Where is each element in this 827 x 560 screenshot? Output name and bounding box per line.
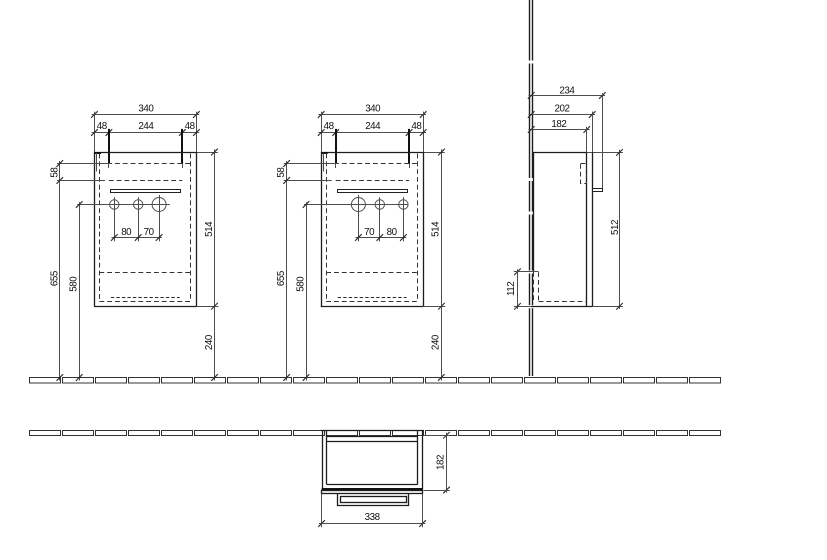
svg-text:48: 48 xyxy=(411,121,422,132)
svg-text:655: 655 xyxy=(276,270,287,286)
svg-text:70: 70 xyxy=(364,227,375,238)
svg-text:244: 244 xyxy=(138,121,154,132)
svg-text:234: 234 xyxy=(559,85,575,96)
svg-text:48: 48 xyxy=(97,121,108,132)
svg-text:58: 58 xyxy=(276,167,287,178)
svg-text:80: 80 xyxy=(387,227,398,238)
svg-text:48: 48 xyxy=(185,121,196,132)
svg-text:340: 340 xyxy=(365,103,381,114)
svg-text:514: 514 xyxy=(204,221,215,237)
svg-text:240: 240 xyxy=(431,334,442,350)
svg-text:338: 338 xyxy=(365,512,381,523)
svg-text:80: 80 xyxy=(121,227,132,238)
svg-text:340: 340 xyxy=(138,103,154,114)
svg-text:244: 244 xyxy=(365,121,381,132)
svg-text:580: 580 xyxy=(295,276,306,292)
svg-text:182: 182 xyxy=(551,119,566,130)
svg-text:240: 240 xyxy=(204,334,215,350)
svg-text:112: 112 xyxy=(506,282,517,296)
svg-text:514: 514 xyxy=(431,221,442,237)
svg-text:58: 58 xyxy=(49,167,60,178)
svg-text:182: 182 xyxy=(436,455,447,470)
svg-text:70: 70 xyxy=(144,227,155,238)
svg-text:655: 655 xyxy=(49,270,60,286)
svg-text:512: 512 xyxy=(610,220,621,235)
svg-text:202: 202 xyxy=(555,104,570,115)
svg-text:580: 580 xyxy=(69,276,80,292)
svg-text:48: 48 xyxy=(324,121,335,132)
